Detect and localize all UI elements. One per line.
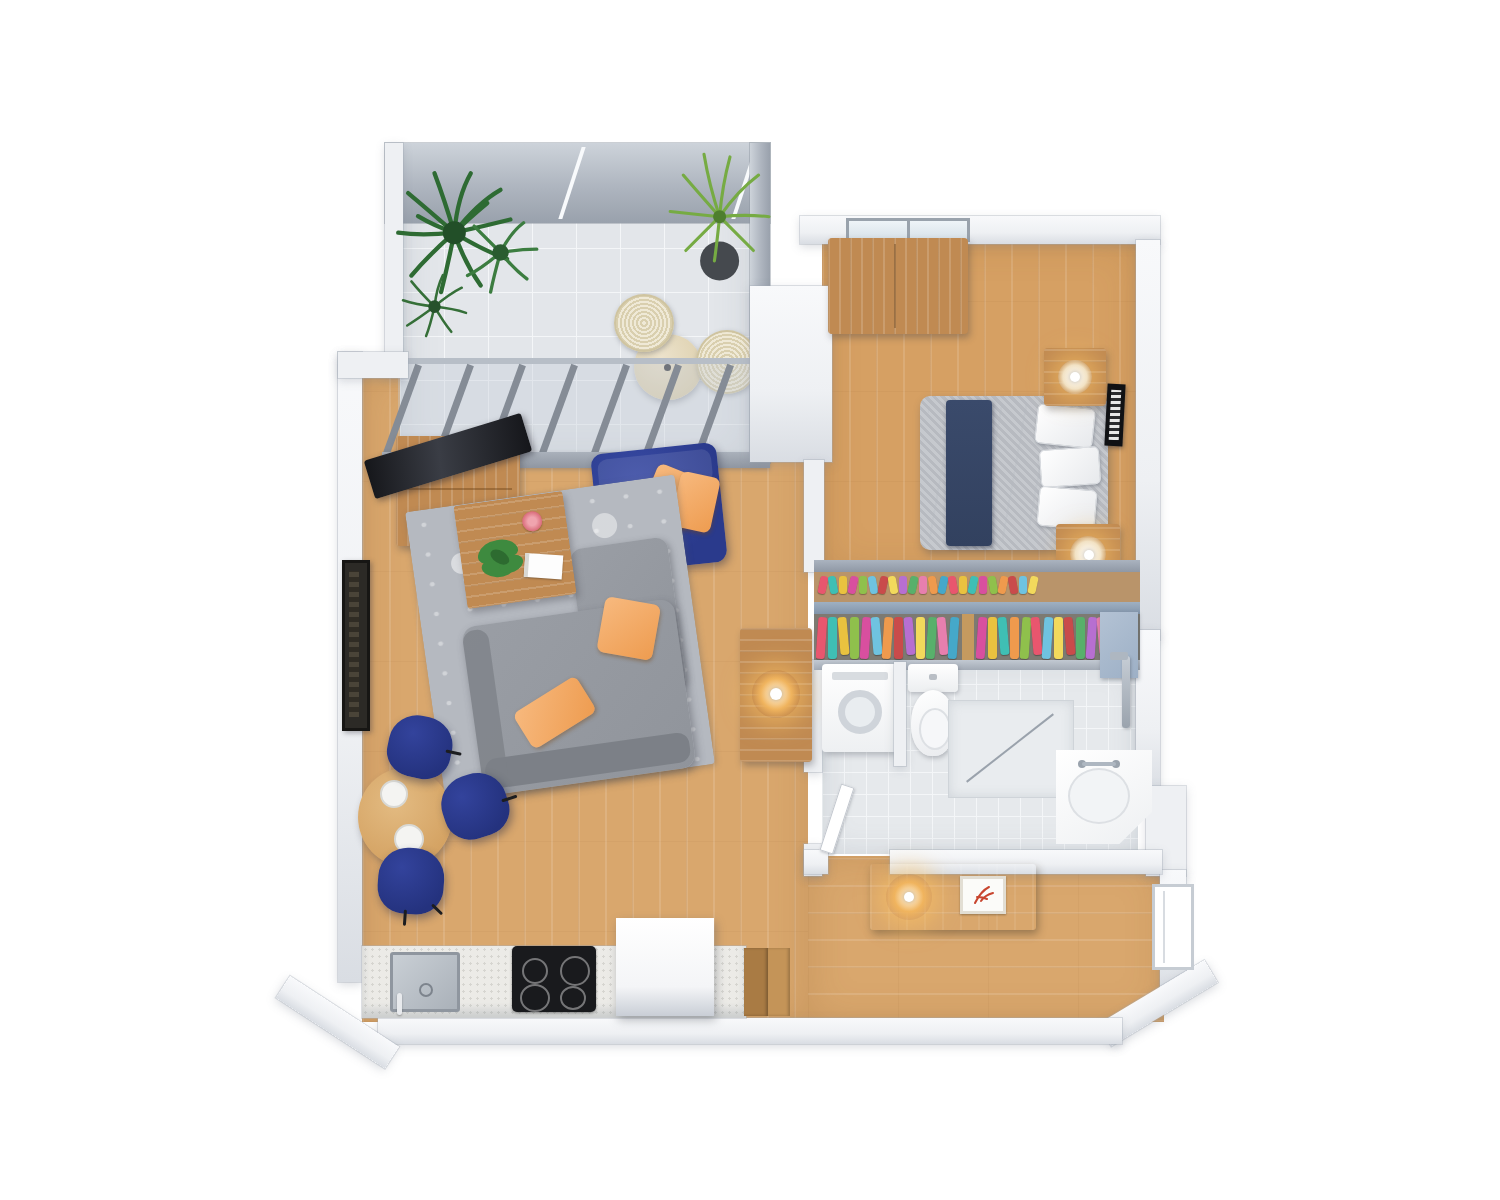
burner bbox=[522, 958, 548, 984]
clothing-item bbox=[976, 617, 987, 660]
navy-dining-chair bbox=[376, 846, 446, 916]
clothing-item bbox=[1086, 617, 1098, 660]
floor-plan-scene bbox=[0, 0, 1500, 1200]
clothing-item bbox=[936, 617, 948, 656]
clothing-item bbox=[1020, 617, 1032, 660]
burner bbox=[560, 956, 590, 986]
clothing-item bbox=[948, 617, 960, 660]
tv-stand-drawer-line bbox=[404, 488, 512, 490]
clothing-item bbox=[979, 576, 987, 594]
coffee-table bbox=[453, 491, 576, 609]
art-inner bbox=[1109, 390, 1122, 440]
closet-door bbox=[1100, 612, 1138, 678]
clothing-item bbox=[882, 617, 894, 660]
potted-palm bbox=[652, 133, 782, 303]
place-setting bbox=[380, 780, 408, 808]
clothing-item bbox=[837, 617, 849, 656]
clothing-item bbox=[903, 617, 915, 656]
door-frame-line bbox=[1163, 891, 1165, 963]
closet-back-rail bbox=[814, 560, 1140, 572]
wicker-chair bbox=[614, 294, 674, 352]
decor-tray bbox=[960, 876, 1006, 914]
side-table bbox=[740, 628, 812, 762]
toilet-seat-inner bbox=[919, 708, 951, 750]
closet-floor-gap bbox=[962, 614, 974, 662]
washing-machine bbox=[822, 664, 898, 752]
framed-wall-art-left bbox=[342, 560, 370, 731]
nightstand bbox=[1044, 348, 1106, 406]
top-left-ledge-wall bbox=[338, 352, 408, 378]
sink-faucet-bar bbox=[1082, 762, 1116, 766]
clothing-item bbox=[919, 576, 927, 594]
closet-mid-rail bbox=[814, 602, 1140, 614]
laundry-nook-wall bbox=[894, 662, 906, 766]
art-pattern bbox=[349, 571, 359, 717]
dresser-seam bbox=[894, 244, 896, 328]
clothing-item bbox=[967, 575, 979, 594]
clothing-item bbox=[959, 576, 967, 594]
lamp-center bbox=[1084, 550, 1094, 560]
shower-fixture bbox=[1122, 656, 1130, 728]
clothing-item bbox=[916, 617, 925, 659]
closet-shoe-shelf bbox=[814, 572, 1140, 604]
washer-control bbox=[832, 672, 888, 680]
clothing-item bbox=[1063, 617, 1075, 656]
clothing-item bbox=[1027, 575, 1039, 594]
bottom-wall bbox=[378, 1018, 1122, 1044]
console-table bbox=[870, 864, 1036, 930]
shower-head bbox=[1110, 652, 1128, 660]
sink-faucet bbox=[397, 993, 402, 1015]
burner bbox=[520, 984, 550, 1012]
small-potted-plant bbox=[382, 252, 487, 357]
sliding-door-top-rail bbox=[398, 358, 754, 364]
bed-pillow bbox=[1034, 403, 1096, 449]
bathroom-bottom-wall-left bbox=[804, 850, 828, 874]
white-island-cabinet bbox=[616, 918, 714, 1016]
burner bbox=[560, 986, 586, 1010]
clothing-item bbox=[907, 575, 919, 594]
clothing-item bbox=[1054, 617, 1063, 659]
bed-pillow bbox=[1039, 446, 1102, 488]
clothing-item bbox=[1030, 617, 1042, 656]
toilet-button bbox=[929, 674, 937, 680]
clothing-item bbox=[839, 576, 847, 594]
clothing-item bbox=[997, 617, 1009, 656]
induction-cooktop bbox=[512, 946, 596, 1012]
lamp-center bbox=[1070, 372, 1080, 382]
clothing-item bbox=[870, 617, 882, 656]
clothing-item bbox=[1076, 617, 1085, 659]
navy-bed-runner bbox=[946, 400, 992, 546]
hanging-clothes-left bbox=[816, 616, 962, 662]
sink-basin bbox=[1068, 768, 1130, 824]
clothing-item bbox=[1010, 617, 1019, 659]
orange-pillow bbox=[596, 596, 661, 661]
clothing-item bbox=[1007, 575, 1018, 594]
kitchen-sink bbox=[390, 952, 460, 1012]
clothing-item bbox=[850, 617, 859, 659]
shower-drain-line bbox=[966, 713, 1054, 782]
clothing-item bbox=[947, 575, 958, 594]
entry-door-opening bbox=[1152, 884, 1194, 970]
clothing-item bbox=[816, 617, 827, 660]
lamp-center bbox=[904, 892, 914, 902]
clothing-item bbox=[894, 617, 903, 659]
clothing-item bbox=[828, 617, 837, 659]
walk-in-shower bbox=[948, 700, 1074, 798]
clothing-item bbox=[1019, 576, 1027, 594]
framed-wall-art-bedroom bbox=[1104, 384, 1125, 447]
clothing-item bbox=[847, 575, 859, 594]
clothing-item bbox=[860, 617, 872, 660]
clothing-item bbox=[926, 617, 938, 660]
magazine bbox=[524, 553, 564, 580]
living-bedroom-divider bbox=[804, 460, 824, 572]
clothing-item bbox=[899, 576, 907, 594]
clothing-item bbox=[827, 575, 838, 594]
wood-dresser bbox=[828, 238, 968, 334]
wall-chunk-balcony-bedroom bbox=[750, 286, 832, 462]
tray-botanical-print bbox=[963, 879, 1003, 911]
window-divider bbox=[907, 221, 910, 239]
glass-panel-seam bbox=[558, 147, 585, 219]
wood-step bbox=[768, 948, 790, 1016]
washer-door-ring bbox=[838, 690, 882, 734]
sink-drain bbox=[419, 983, 433, 997]
lamp-center bbox=[770, 688, 782, 700]
clothing-item bbox=[887, 575, 898, 594]
clothing-item bbox=[988, 617, 997, 659]
wood-step bbox=[744, 948, 768, 1016]
clothing-item bbox=[1042, 617, 1054, 660]
clothing-item bbox=[859, 576, 867, 594]
